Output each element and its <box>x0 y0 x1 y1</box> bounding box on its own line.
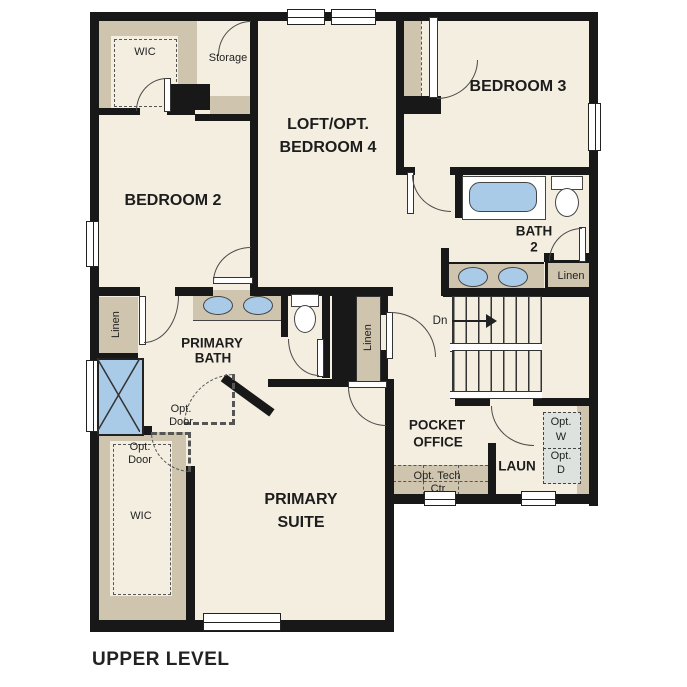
wall-hall-laundry-b <box>533 398 598 406</box>
label-opt-dryer-line2: D <box>557 464 565 476</box>
label-opt-door-lower-line2: Door <box>128 454 152 466</box>
wall-loft-right <box>396 12 404 175</box>
label-opt-door-lower-line1: Opt. <box>130 441 151 453</box>
room-label-bedroom2: BEDROOM 2 <box>125 192 222 210</box>
sink-bath2-1 <box>458 267 488 287</box>
room-label-bath2-line2: 2 <box>530 240 538 255</box>
wall-storage-bottom <box>195 114 257 121</box>
window-laundry <box>521 491 556 506</box>
shower <box>97 358 144 436</box>
room-label-loft-line1: LOFT/OPT. <box>287 116 369 134</box>
stairs-bottom-bar <box>450 391 542 399</box>
bedroom3-closet-rod <box>421 16 423 96</box>
wall-chunk-wic-storage <box>170 84 210 110</box>
room-label-bath2-line1: BATH <box>516 224 553 239</box>
toilet-primary-bowl <box>294 305 316 333</box>
room-label-primary-bath-line2: BATH <box>195 351 232 366</box>
label-opt-dryer-line1: Opt. <box>551 450 572 462</box>
page-title: UPPER LEVEL <box>92 649 229 671</box>
wall-bed3closet-block <box>403 96 441 114</box>
room-label-laundry: LAUN <box>498 459 536 474</box>
room-label-pocket-office-line1: POCKET <box>409 418 465 433</box>
wall-chunk-linen <box>332 287 356 385</box>
wall-hall-laundry-a <box>455 398 490 406</box>
wall-bedroom2-right <box>250 12 258 296</box>
wall-linenhall-right-a <box>381 287 388 315</box>
bedroom3-closet <box>404 16 421 96</box>
label-storage: Storage <box>209 52 248 64</box>
room-label-bedroom3: BEDROOM 3 <box>470 78 567 96</box>
window-primary-suite <box>203 613 281 631</box>
storage-divider <box>183 21 197 84</box>
wall-wc-left <box>281 290 288 337</box>
toilet-bath2-bowl <box>555 188 579 217</box>
wall-mid-a <box>90 287 140 296</box>
label-stairs-down: Dn <box>433 315 448 327</box>
label-linen-primary: Linen <box>110 300 122 350</box>
room-label-loft-line2: BEDROOM 4 <box>280 139 377 157</box>
shower-x-icon <box>97 358 140 432</box>
label-wic-upper: WIC <box>134 46 155 58</box>
label-wic-lower: WIC <box>130 510 151 522</box>
wall-suite-right <box>385 387 394 632</box>
stairs-down-arrow-head <box>486 314 497 328</box>
window-bedroom2 <box>86 221 99 267</box>
room-label-pocket-office-line2: OFFICE <box>413 435 463 450</box>
wall-office-laundry <box>488 443 496 501</box>
floor-plan: BEDROOM 2 LOFT/OPT. BEDROOM 4 BEDROOM 3 … <box>0 0 687 687</box>
label-opt-tech-line1: Opt. Tech <box>414 470 461 482</box>
tub <box>469 182 537 212</box>
room-label-primary-suite-line1: PRIMARY <box>264 491 337 509</box>
stairs-lower-flight <box>452 350 542 393</box>
wall-left <box>90 12 99 632</box>
label-opt-tech-line2: Ctr <box>431 483 446 495</box>
label-linen-hall: Linen <box>362 313 374 363</box>
sink-bath2-2 <box>498 267 528 287</box>
wall-wic-lower-right <box>186 466 195 622</box>
label-opt-washer-line2: W <box>556 431 566 443</box>
window-top-2 <box>331 9 376 25</box>
window-bedroom3 <box>588 103 601 151</box>
stairs-down-arrow-shaft <box>452 320 488 322</box>
wall-bedroom3-bottom-b <box>450 167 598 175</box>
wall-mid-b <box>175 287 213 296</box>
room-label-primary-bath-line1: PRIMARY <box>181 336 243 351</box>
room-label-primary-suite-line2: SUITE <box>277 514 324 532</box>
label-opt-door-upper-line2: Door <box>169 416 193 428</box>
label-linen-bath2: Linen <box>558 270 585 282</box>
sink-primary-1 <box>203 296 233 315</box>
label-opt-door-upper-line1: Opt. <box>171 403 192 415</box>
wall-wic-upper-bottom-a <box>97 108 140 115</box>
sink-primary-2 <box>243 296 273 315</box>
window-top-1 <box>287 9 325 25</box>
label-opt-washer-line1: Opt. <box>551 416 572 428</box>
wall-suite-top <box>268 379 348 387</box>
